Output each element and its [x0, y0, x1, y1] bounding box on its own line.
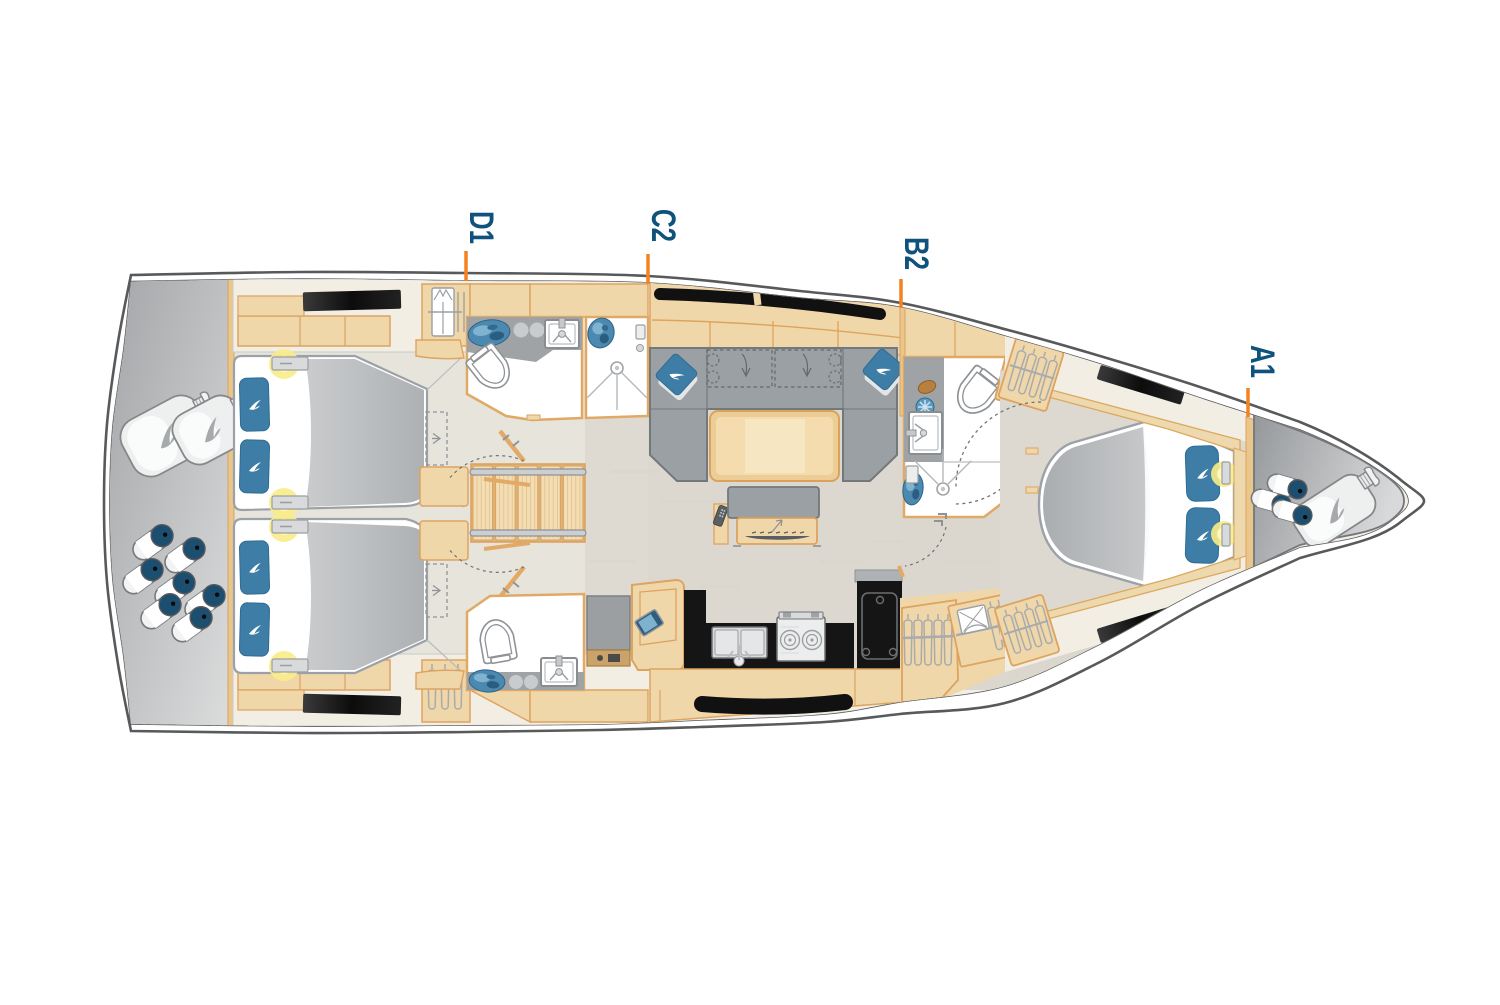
svg-text:A1: A1: [1243, 345, 1281, 378]
svg-text:D1: D1: [462, 211, 500, 244]
svg-text:B2: B2: [897, 237, 935, 270]
svg-text:C2: C2: [644, 209, 682, 242]
